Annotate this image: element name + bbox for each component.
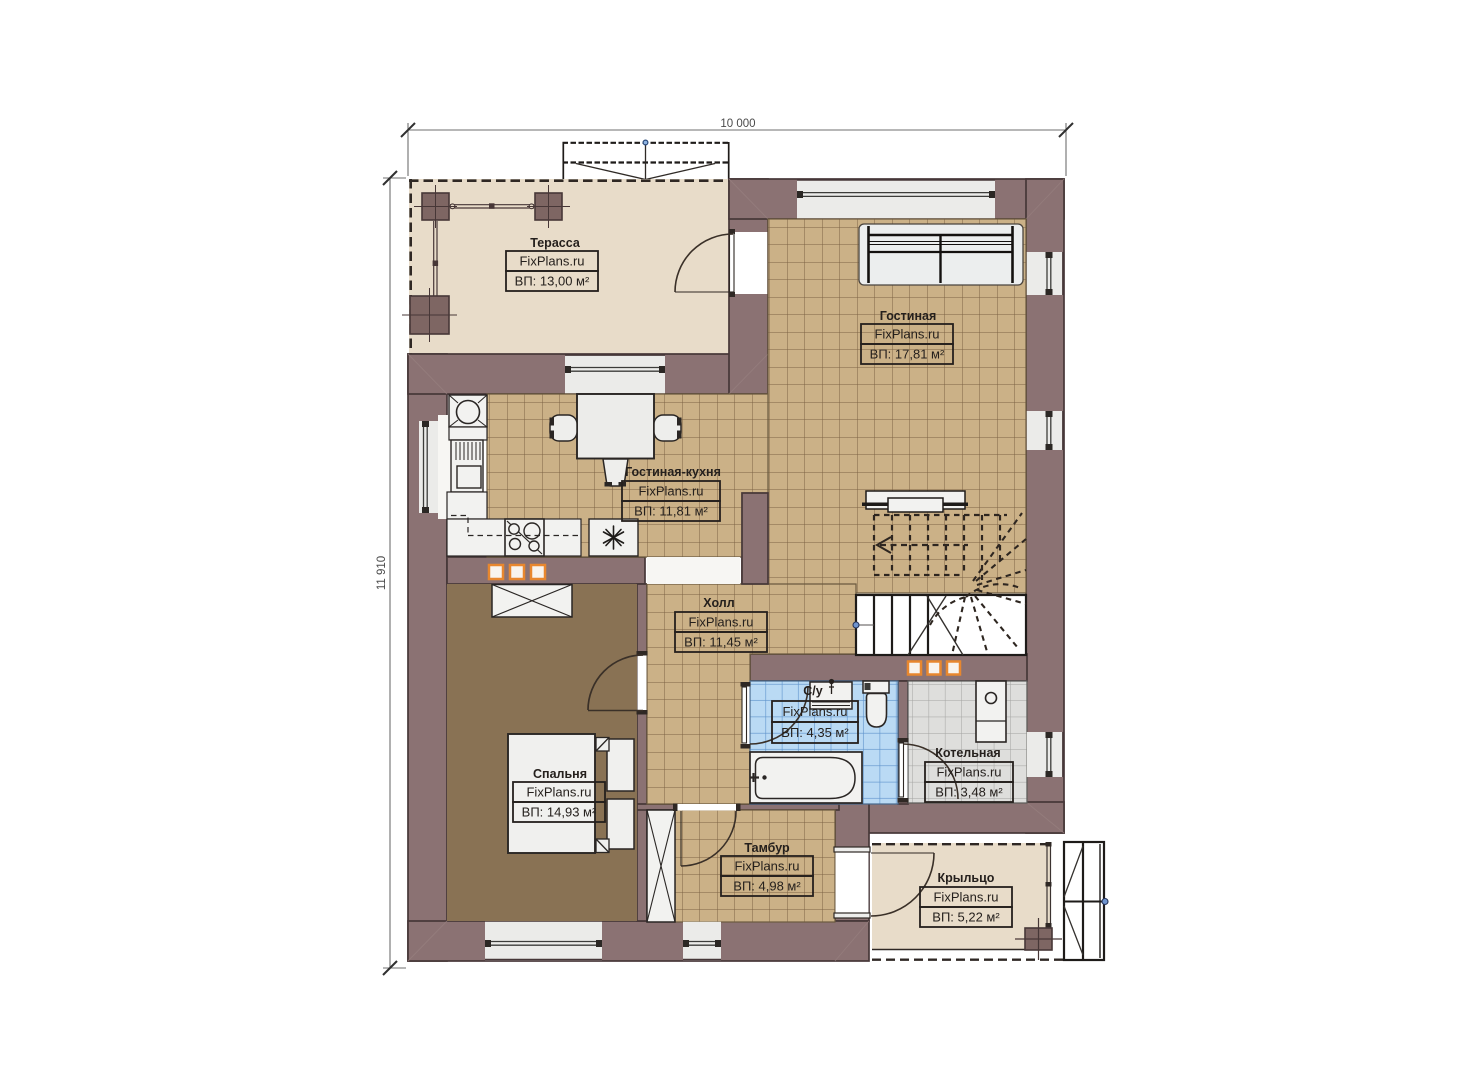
svg-text:Гостиная: Гостиная <box>880 309 937 323</box>
svg-text:FixPlans.ru: FixPlans.ru <box>526 785 591 800</box>
svg-text:С/у: С/у <box>803 684 823 698</box>
svg-text:Гостиная-кухня: Гостиная-кухня <box>625 465 721 479</box>
svg-text:ВП: 11,81 м²: ВП: 11,81 м² <box>634 504 708 519</box>
svg-text:Терасса: Терасса <box>530 236 581 250</box>
svg-text:10 000: 10 000 <box>720 118 755 130</box>
svg-text:FixPlans.ru: FixPlans.ru <box>688 615 753 630</box>
svg-text:ВП: 4,35 м²: ВП: 4,35 м² <box>781 725 849 740</box>
svg-text:Холл: Холл <box>703 596 734 610</box>
svg-text:11 910: 11 910 <box>376 556 388 590</box>
svg-text:ВП: 11,45 м²: ВП: 11,45 м² <box>684 635 758 650</box>
svg-text:FixPlans.ru: FixPlans.ru <box>874 327 939 342</box>
svg-text:FixPlans.ru: FixPlans.ru <box>936 765 1001 780</box>
svg-text:ВП: 5,22 м²: ВП: 5,22 м² <box>932 910 1000 925</box>
svg-text:ВП: 4,98 м²: ВП: 4,98 м² <box>733 879 801 894</box>
svg-text:Тамбур: Тамбур <box>744 841 790 855</box>
svg-text:Крыльцо: Крыльцо <box>938 871 995 885</box>
svg-text:FixPlans.ru: FixPlans.ru <box>933 890 998 905</box>
svg-text:FixPlans.ru: FixPlans.ru <box>782 704 847 719</box>
svg-text:FixPlans.ru: FixPlans.ru <box>519 254 584 269</box>
svg-text:Спальня: Спальня <box>533 767 587 781</box>
svg-text:ВП: 17,81 м²: ВП: 17,81 м² <box>870 347 945 362</box>
svg-text:FixPlans.ru: FixPlans.ru <box>638 484 703 499</box>
svg-text:ВП: 14,93 м²: ВП: 14,93 м² <box>522 805 597 820</box>
svg-text:ВП: 3,48 м²: ВП: 3,48 м² <box>935 785 1003 800</box>
svg-text:Котельная: Котельная <box>935 746 1000 760</box>
svg-text:ВП: 13,00 м²: ВП: 13,00 м² <box>515 274 590 289</box>
svg-text:FixPlans.ru: FixPlans.ru <box>734 859 799 874</box>
